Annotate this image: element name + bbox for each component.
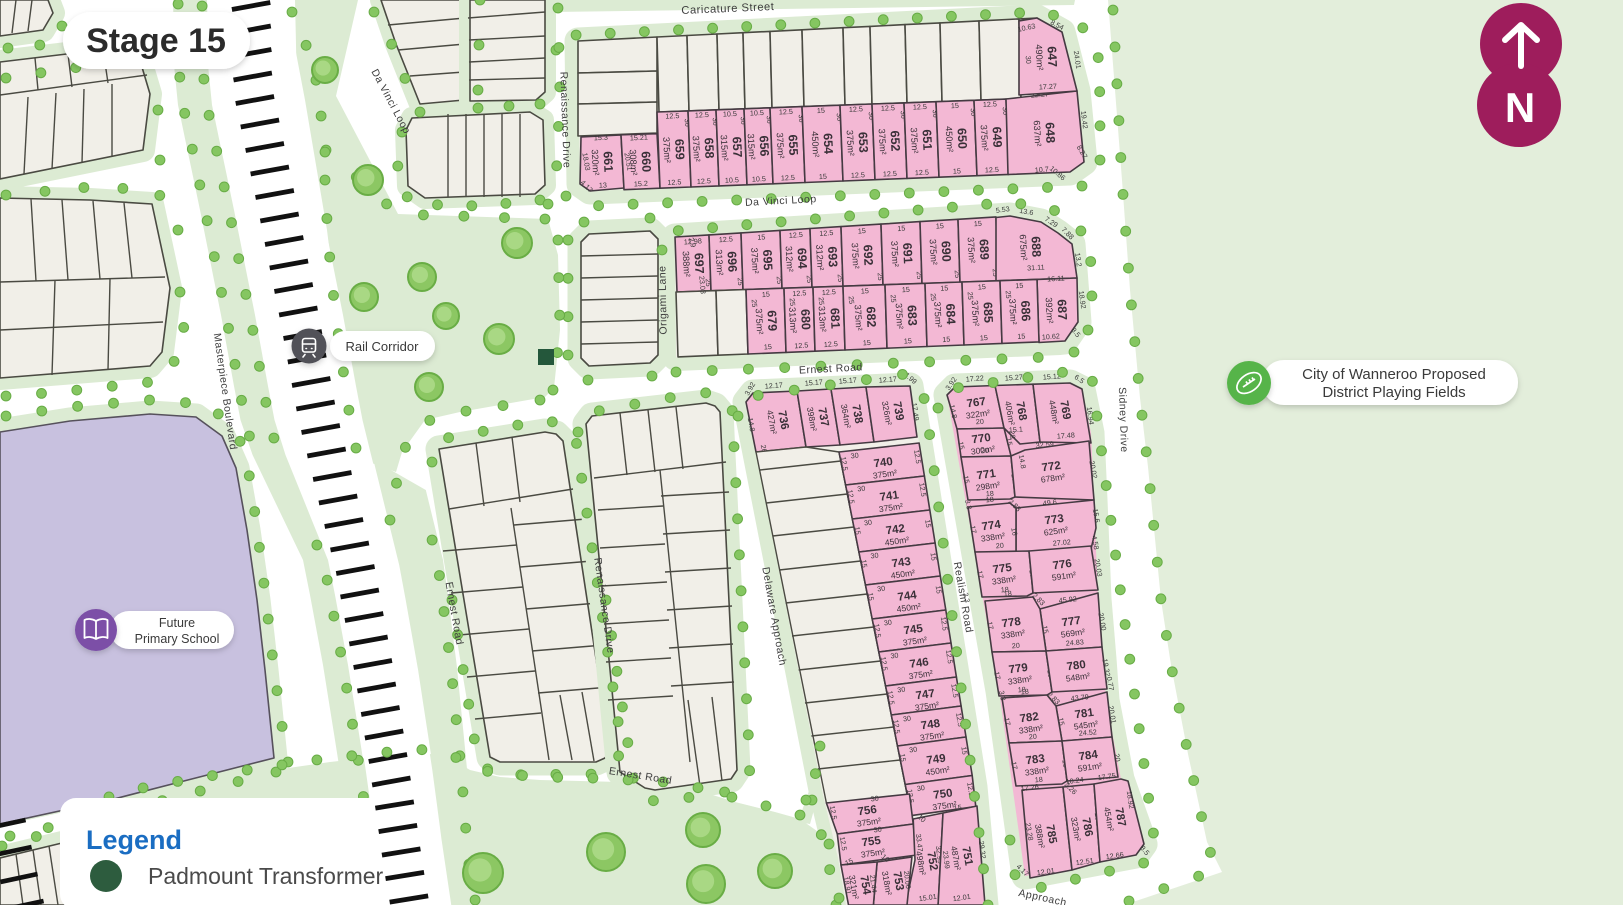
svg-text:15: 15 (934, 585, 944, 594)
svg-text:12.5: 12.5 (779, 107, 793, 117)
svg-text:15: 15 (942, 335, 951, 345)
svg-text:12.5: 12.5 (695, 110, 709, 120)
svg-text:679: 679 (764, 310, 779, 332)
svg-text:657: 657 (729, 136, 744, 158)
svg-text:653: 653 (855, 132, 870, 154)
svg-text:15: 15 (928, 552, 938, 561)
svg-text:45.92: 45.92 (1058, 594, 1077, 605)
svg-text:652: 652 (887, 130, 902, 152)
svg-text:15: 15 (1017, 331, 1026, 341)
svg-text:12.5: 12.5 (883, 169, 897, 179)
svg-text:375m²: 375m² (932, 301, 943, 328)
svg-text:686: 686 (1018, 300, 1033, 322)
svg-text:15: 15 (898, 753, 908, 762)
svg-text:687: 687 (1054, 299, 1069, 321)
svg-text:15.17: 15.17 (804, 377, 823, 388)
svg-text:690: 690 (938, 241, 953, 263)
svg-text:Sidney Drive: Sidney Drive (1116, 387, 1130, 453)
svg-text:15: 15 (902, 285, 911, 295)
svg-text:18: 18 (985, 495, 994, 505)
svg-text:15.27: 15.27 (1005, 372, 1024, 382)
svg-text:12.5: 12.5 (665, 111, 679, 121)
svg-text:649: 649 (989, 126, 1004, 148)
svg-text:N: N (1505, 84, 1535, 131)
svg-text:315m²: 315m² (719, 134, 730, 161)
svg-text:683: 683 (904, 305, 919, 327)
svg-text:12.5: 12.5 (792, 288, 807, 298)
svg-text:15: 15 (959, 746, 969, 755)
svg-text:375m²: 375m² (894, 303, 905, 330)
svg-text:315m²: 315m² (746, 133, 757, 160)
svg-text:659: 659 (672, 139, 687, 161)
svg-text:684: 684 (943, 303, 958, 325)
svg-text:15.1: 15.1 (1009, 425, 1024, 435)
svg-text:Rail Corridor: Rail Corridor (346, 339, 420, 354)
svg-text:12.5: 12.5 (667, 177, 681, 187)
svg-text:30: 30 (1024, 55, 1034, 64)
svg-text:15.21: 15.21 (630, 133, 648, 143)
svg-text:661: 661 (600, 151, 615, 173)
svg-text:375m²: 375m² (749, 247, 760, 274)
svg-text:450m²: 450m² (944, 126, 955, 153)
svg-text:49.6: 49.6 (1042, 497, 1057, 507)
svg-text:25: 25 (889, 294, 899, 303)
svg-text:30: 30 (870, 551, 879, 561)
svg-text:693: 693 (825, 246, 840, 268)
svg-text:15: 15 (858, 226, 867, 236)
svg-text:20: 20 (1028, 732, 1037, 742)
svg-text:23.03: 23.03 (697, 276, 708, 295)
svg-text:30: 30 (850, 451, 859, 461)
svg-text:10.5: 10.5 (725, 175, 739, 185)
svg-text:375m²: 375m² (909, 127, 920, 154)
svg-text:25: 25 (847, 296, 857, 305)
svg-text:654: 654 (820, 133, 835, 155)
svg-text:490m²: 490m² (1034, 44, 1045, 71)
svg-text:375m²: 375m² (661, 137, 672, 164)
svg-text:388m²: 388m² (681, 251, 692, 278)
svg-text:312m²: 312m² (814, 244, 825, 271)
svg-text:15: 15 (764, 342, 773, 352)
svg-text:30: 30 (897, 685, 906, 695)
svg-text:15: 15 (904, 336, 913, 346)
svg-text:18: 18 (1003, 589, 1012, 599)
svg-text:12.5: 12.5 (822, 287, 837, 297)
svg-text:12.5: 12.5 (983, 99, 997, 109)
svg-text:375m²: 375m² (966, 237, 977, 264)
svg-text:375m²: 375m² (877, 128, 888, 155)
svg-text:691: 691 (900, 242, 915, 264)
svg-text:682: 682 (863, 306, 878, 328)
svg-text:Stage 15: Stage 15 (86, 22, 226, 60)
svg-text:12.5: 12.5 (719, 234, 734, 244)
svg-text:25: 25 (750, 299, 760, 308)
svg-text:695: 695 (760, 249, 775, 271)
svg-text:12.5: 12.5 (789, 230, 804, 240)
svg-text:15: 15 (762, 290, 771, 300)
svg-text:681: 681 (827, 308, 842, 330)
svg-text:375m²: 375m² (979, 124, 990, 151)
svg-text:12.5: 12.5 (794, 340, 809, 350)
svg-text:12.5: 12.5 (913, 102, 927, 112)
svg-text:25: 25 (817, 297, 827, 306)
svg-text:15: 15 (951, 101, 959, 110)
svg-text:15: 15 (817, 106, 825, 115)
svg-text:Padmount Transformer: Padmount Transformer (148, 863, 384, 889)
svg-text:25: 25 (929, 293, 939, 302)
svg-text:313m²: 313m² (787, 307, 798, 334)
svg-text:Future: Future (159, 616, 195, 630)
svg-text:375m²: 375m² (691, 135, 702, 162)
svg-text:20: 20 (1112, 753, 1122, 762)
svg-text:12.5: 12.5 (985, 165, 999, 175)
svg-text:658: 658 (701, 137, 716, 159)
svg-text:30: 30 (902, 714, 911, 724)
svg-text:30: 30 (870, 794, 879, 804)
svg-text:375m²: 375m² (970, 300, 981, 327)
svg-text:450m²: 450m² (810, 131, 821, 158)
svg-text:15: 15 (866, 592, 876, 601)
svg-text:680: 680 (798, 309, 813, 331)
svg-text:15: 15 (923, 519, 933, 528)
svg-text:15.3: 15.3 (594, 133, 608, 143)
svg-text:10.5: 10.5 (723, 109, 737, 119)
svg-text:375m²: 375m² (845, 130, 856, 157)
svg-text:375m²: 375m² (928, 239, 939, 266)
svg-text:17.22: 17.22 (965, 373, 984, 384)
svg-text:688: 688 (1028, 236, 1043, 258)
svg-text:27.02: 27.02 (1052, 537, 1071, 548)
svg-text:24.52: 24.52 (1078, 727, 1097, 738)
svg-text:375m²: 375m² (850, 242, 861, 269)
svg-text:313m²: 313m² (714, 249, 725, 276)
svg-text:30: 30 (877, 584, 886, 594)
svg-text:16: 16 (1009, 527, 1019, 536)
svg-text:25: 25 (966, 291, 976, 300)
svg-text:12.5: 12.5 (781, 173, 795, 183)
svg-text:25: 25 (788, 298, 798, 307)
svg-text:696: 696 (724, 251, 739, 273)
svg-text:18: 18 (1020, 687, 1029, 697)
svg-text:15.17: 15.17 (838, 375, 857, 386)
svg-text:43.79: 43.79 (1070, 692, 1089, 703)
svg-text:375m²: 375m² (853, 304, 864, 331)
svg-text:651: 651 (919, 129, 934, 151)
svg-text:10.5: 10.5 (752, 174, 766, 184)
svg-text:30: 30 (916, 783, 925, 793)
svg-text:15: 15 (863, 338, 872, 348)
svg-text:12.5: 12.5 (849, 104, 863, 114)
svg-text:30: 30 (863, 518, 872, 528)
svg-text:31.11: 31.11 (1027, 263, 1045, 273)
svg-text:12.5: 12.5 (819, 228, 834, 238)
svg-text:15: 15 (936, 221, 945, 231)
svg-text:15: 15 (897, 224, 906, 234)
svg-text:312m²: 312m² (784, 246, 795, 273)
svg-text:12.5: 12.5 (881, 103, 895, 113)
svg-text:692: 692 (860, 244, 875, 266)
svg-text:20: 20 (981, 446, 990, 456)
svg-text:15: 15 (940, 283, 949, 293)
svg-text:12.5: 12.5 (697, 176, 711, 186)
svg-text:10.7: 10.7 (1034, 164, 1049, 174)
svg-text:17.27: 17.27 (1039, 82, 1057, 92)
svg-text:675m²: 675m² (1018, 234, 1029, 261)
svg-text:12.17: 12.17 (764, 380, 783, 391)
svg-text:City of Wanneroo Proposed: City of Wanneroo Proposed (1302, 366, 1486, 383)
svg-text:15: 15 (859, 559, 869, 568)
svg-text:313m²: 313m² (817, 306, 828, 333)
svg-text:655: 655 (785, 134, 800, 156)
svg-text:15: 15 (1015, 281, 1024, 291)
svg-text:694: 694 (794, 248, 809, 270)
svg-text:685: 685 (980, 302, 995, 324)
svg-text:647: 647 (1044, 46, 1059, 68)
svg-text:15: 15 (953, 803, 962, 813)
svg-text:30: 30 (883, 618, 892, 628)
svg-text:689: 689 (976, 239, 991, 261)
svg-text:12.5: 12.5 (824, 339, 839, 349)
svg-text:Origami Lane: Origami Lane (656, 265, 669, 334)
svg-text:15.2: 15.2 (634, 179, 648, 189)
svg-text:10.5: 10.5 (750, 108, 764, 118)
svg-text:15: 15 (861, 286, 870, 296)
svg-text:375m²: 375m² (889, 241, 900, 268)
svg-text:375m²: 375m² (754, 308, 765, 335)
svg-text:32.59: 32.59 (1035, 439, 1054, 450)
svg-text:30: 30 (873, 825, 882, 835)
svg-text:10.62: 10.62 (1042, 331, 1061, 341)
svg-text:17.48: 17.48 (1057, 430, 1076, 440)
svg-text:697: 697 (691, 253, 706, 275)
svg-text:660: 660 (638, 151, 653, 173)
svg-text:15: 15 (953, 166, 961, 175)
svg-text:656: 656 (756, 135, 771, 157)
svg-text:20: 20 (976, 417, 985, 427)
svg-text:30: 30 (890, 651, 899, 661)
svg-text:Legend: Legend (86, 825, 182, 855)
svg-text:15: 15 (757, 232, 766, 242)
svg-text:20: 20 (1011, 641, 1020, 651)
svg-text:637m²: 637m² (1032, 120, 1043, 147)
svg-text:30: 30 (857, 484, 866, 494)
svg-text:24.83: 24.83 (1065, 637, 1084, 648)
svg-text:392m²: 392m² (1044, 297, 1055, 324)
svg-text:15: 15 (974, 219, 983, 229)
svg-text:District Playing Fields: District Playing Fields (1322, 384, 1465, 401)
svg-text:15: 15 (819, 172, 827, 181)
svg-text:15: 15 (978, 282, 987, 292)
svg-text:15: 15 (1004, 437, 1014, 446)
svg-text:12.17: 12.17 (878, 374, 897, 385)
svg-text:Primary School: Primary School (135, 632, 220, 646)
svg-text:16.11: 16.11 (1047, 274, 1065, 284)
svg-text:20: 20 (995, 541, 1004, 551)
svg-text:13: 13 (599, 180, 607, 189)
svg-text:25: 25 (1004, 290, 1014, 299)
svg-text:15: 15 (980, 333, 989, 343)
svg-text:30: 30 (909, 745, 918, 755)
svg-text:375m²: 375m² (775, 132, 786, 159)
svg-text:12.5: 12.5 (915, 168, 929, 178)
svg-text:12.5: 12.5 (851, 170, 865, 180)
svg-text:650: 650 (954, 128, 969, 150)
svg-text:15: 15 (853, 526, 863, 535)
svg-text:648: 648 (1042, 122, 1057, 144)
svg-text:375m²: 375m² (1007, 298, 1018, 325)
